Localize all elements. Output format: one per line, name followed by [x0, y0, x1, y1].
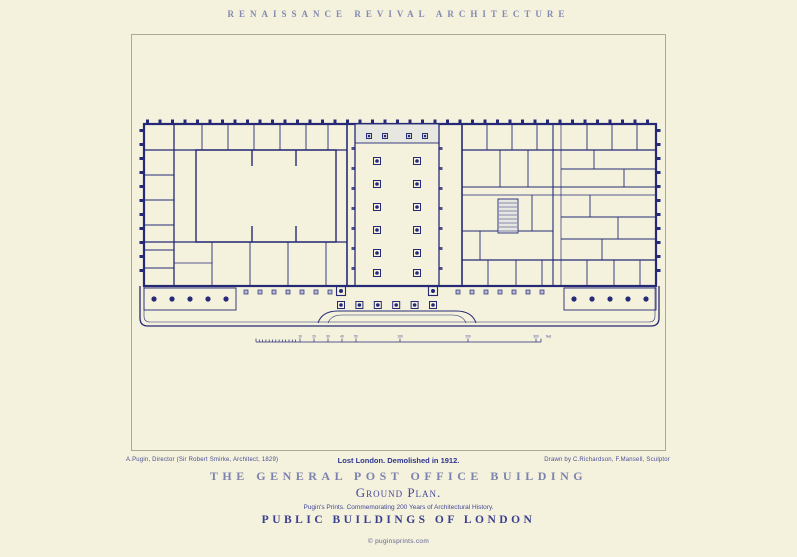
right-wing [462, 124, 656, 286]
scale-label: 10 [298, 335, 302, 339]
demolition-note: Lost London. Demolished in 1912. [0, 456, 797, 465]
caption-row: A.Pugin, Director (Sir Robert Smirke, Ar… [0, 456, 797, 468]
scale-label: 300 [533, 335, 539, 339]
paving-squares [244, 290, 544, 294]
scale-bar: 10 20 30 40 50 100 200 300 feet [256, 335, 551, 343]
building-title: THE GENERAL POST OFFICE BUILDING [0, 469, 797, 484]
scale-label: 100 [397, 335, 403, 339]
ground-plan-drawing: 10 20 30 40 50 100 200 300 feet [140, 122, 659, 343]
left-colonnade [144, 288, 236, 310]
scale-unit-label: feet [546, 335, 551, 339]
scale-label: 40 [340, 335, 344, 339]
plan-type-label: Ground Plan. [0, 485, 797, 501]
scale-label: 200 [465, 335, 471, 339]
scale-ticks [256, 339, 541, 343]
commemoration-note: Pugin's Prints. Commemorating 200 Years … [0, 504, 797, 511]
hall-pier-row-right [414, 158, 421, 277]
scale-label: 20 [312, 335, 316, 339]
central-portico [318, 287, 476, 324]
right-colonnade [564, 288, 656, 310]
scale-labels: 10 20 30 40 50 100 200 300 feet [298, 335, 551, 339]
staircase [498, 199, 518, 233]
left-wing [144, 124, 347, 286]
hall-pier-row-left [374, 158, 381, 277]
series-title: RENAISSANCE REVIVAL ARCHITECTURE [0, 9, 797, 19]
print-frame: 10 20 30 40 50 100 200 300 feet [131, 34, 666, 451]
central-hall [353, 124, 441, 286]
poster-page: { "poster": { "series_title": "RENAISSAN… [0, 0, 797, 557]
collection-title: PUBLIC BUILDINGS OF LONDON [0, 514, 797, 526]
pavement-strip [140, 286, 659, 326]
floor-plan: 10 20 30 40 50 100 200 300 feet [132, 35, 665, 450]
scale-label: 30 [326, 335, 330, 339]
artist-credit: Drawn by C.Richardson, F.Mansell, Sculpt… [544, 457, 670, 463]
publisher-footer: © puginsprints.com [0, 538, 797, 545]
outer-walls [142, 122, 659, 287]
scale-label: 50 [354, 335, 358, 339]
